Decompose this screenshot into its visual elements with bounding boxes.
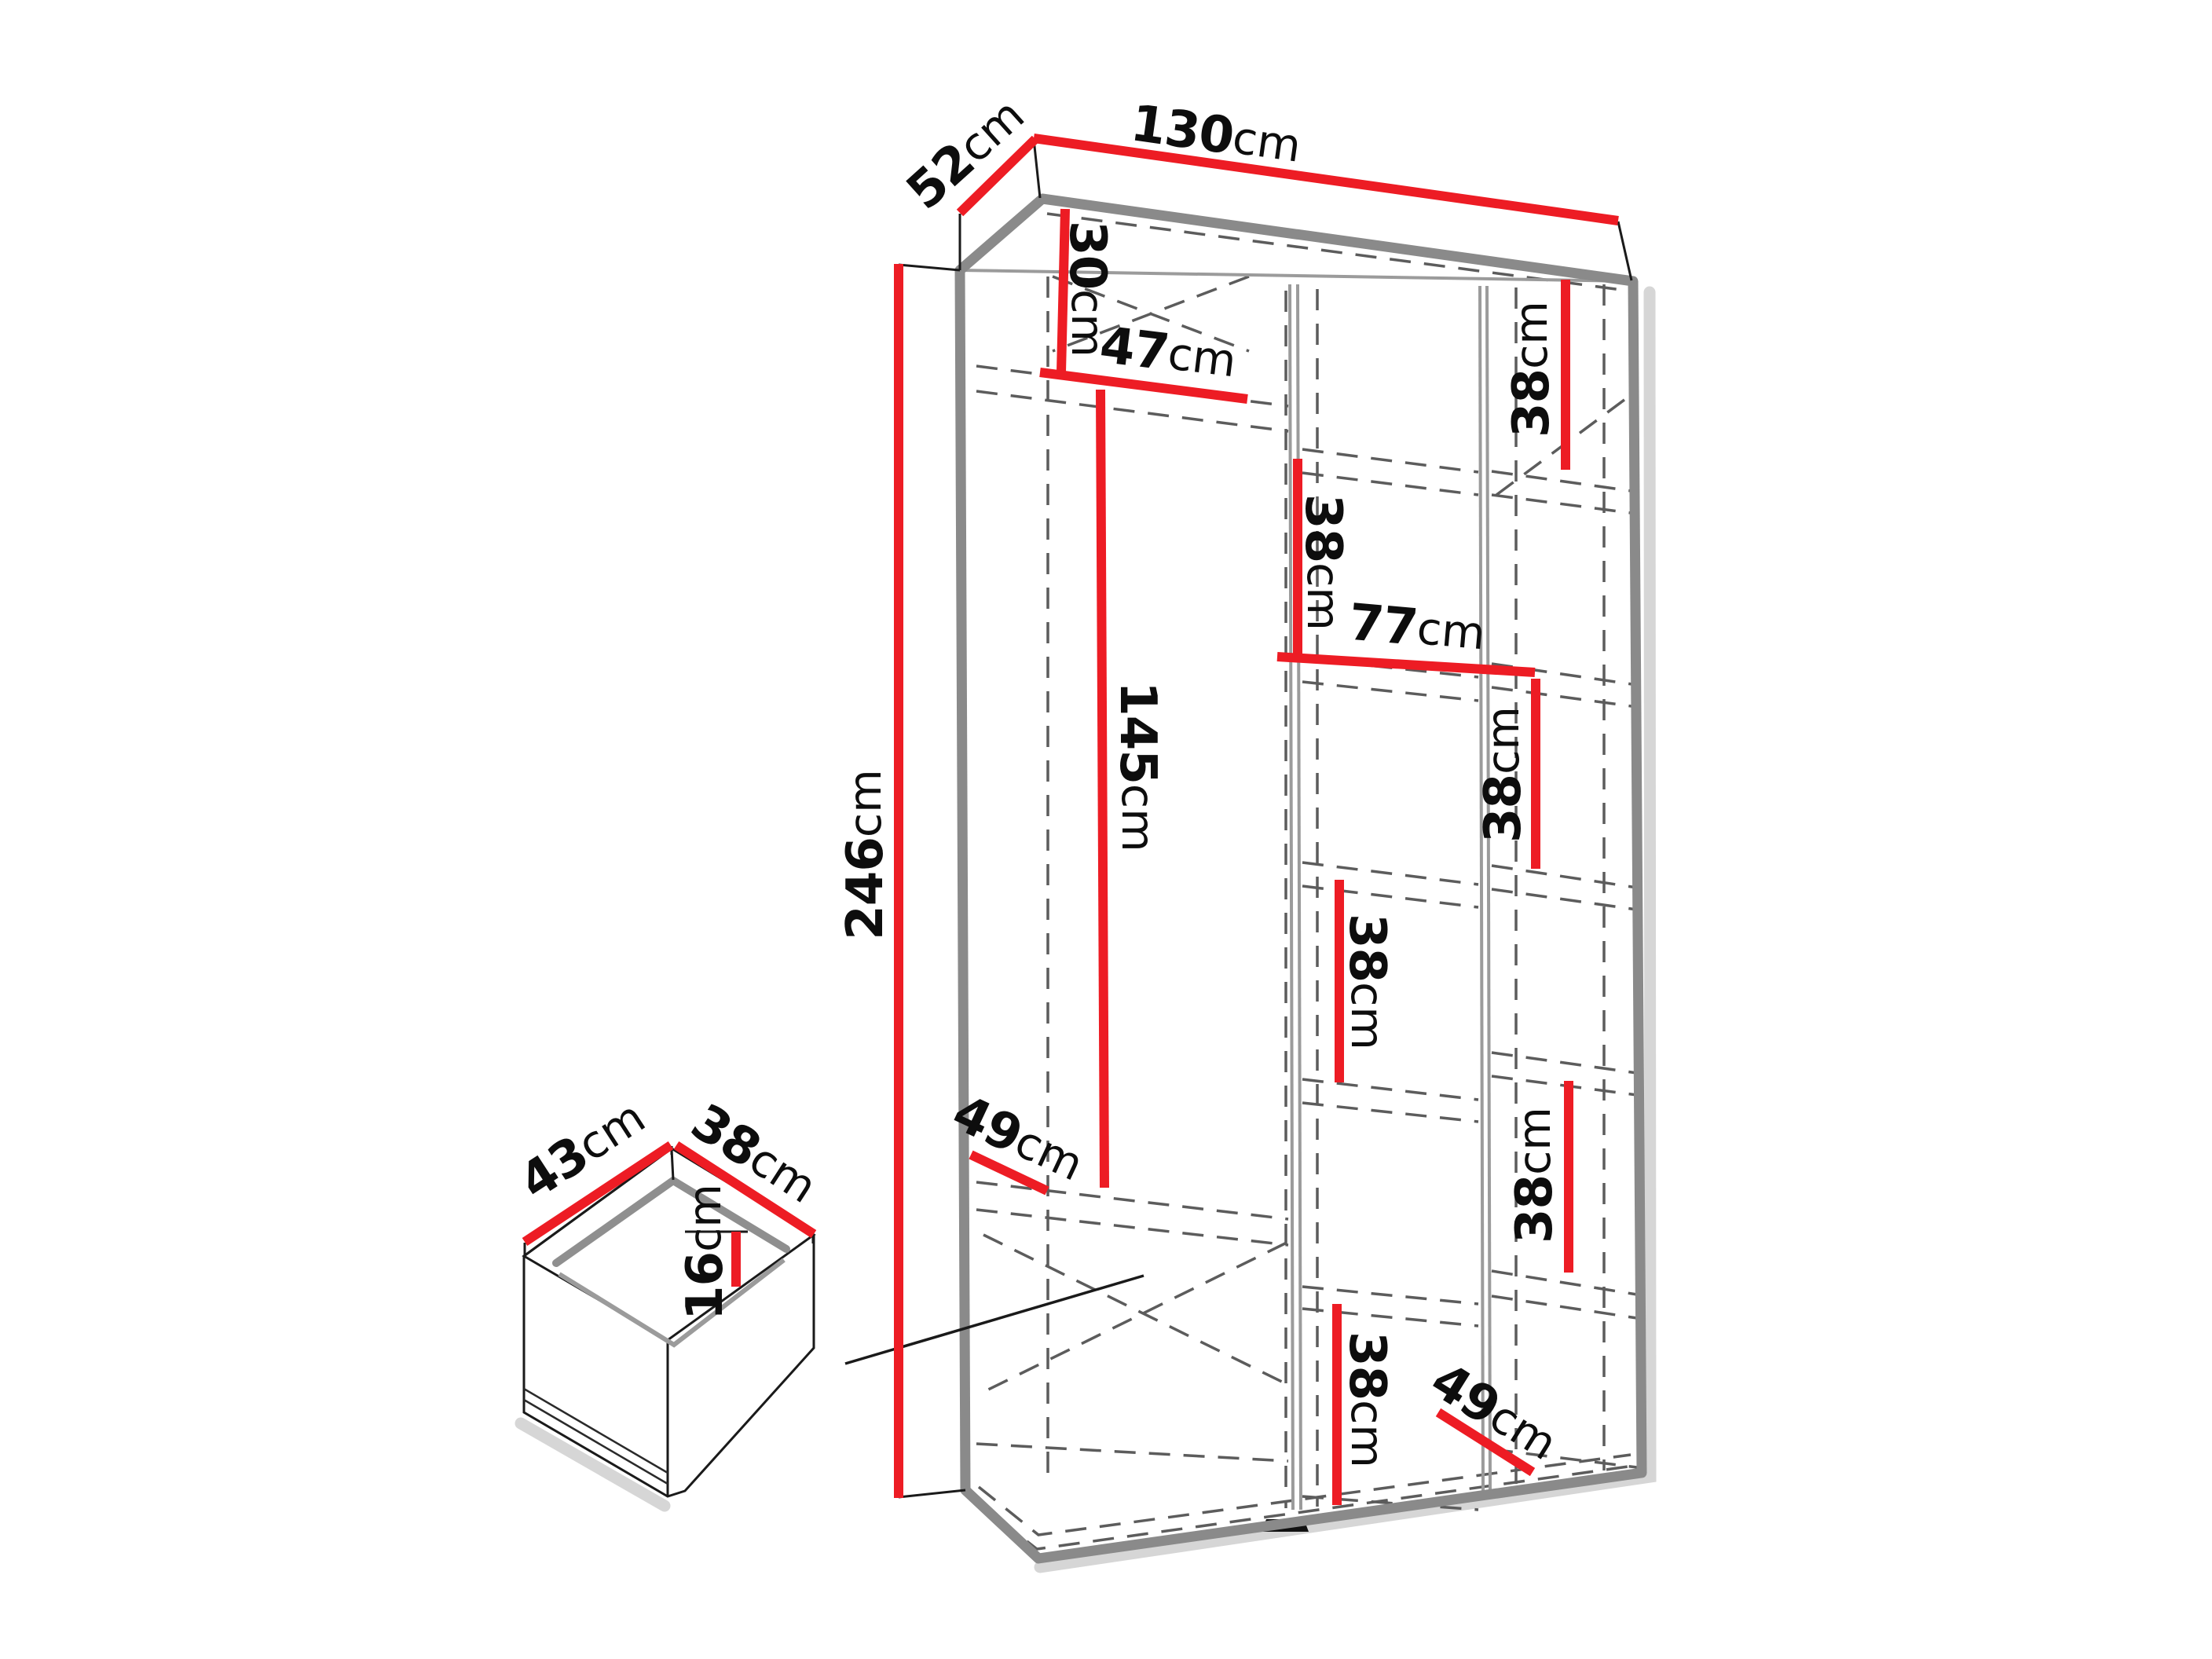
wardrobe-dimension-diagram: 130cm52cm246cm30cm47cm145cm38cm38cm77cm3… [0, 0, 2212, 1659]
dim-shelf-mid-1-label: 38cm [1294, 494, 1352, 631]
dim-hanging-height-label: 145cm [1108, 681, 1166, 851]
dim-hanging-height-line [1101, 390, 1104, 1188]
drawer-shadow [521, 1423, 665, 1506]
dim-shelf-mid-2-label: 38cm [1338, 914, 1396, 1050]
dim-shelf-right-2-label: 38cm [1474, 706, 1533, 843]
drawer-inner-bottom [559, 1260, 784, 1345]
dim-shelf-right-1-label: 38cm [1503, 301, 1561, 438]
dim-shelf-mid-3-label: 38cm [1338, 1331, 1396, 1468]
dim-drawer-depth-label: 43cm [510, 1089, 656, 1212]
diagram-stage: 130cm52cm246cm30cm47cm145cm38cm38cm77cm3… [0, 0, 2212, 1659]
dim-drawer-height-label: 16cm [676, 1184, 734, 1320]
dim-height-label: 246cm [837, 769, 895, 939]
drawer-detail [521, 1146, 814, 1506]
dim-width-label: 130cm [1127, 94, 1305, 176]
dim-shelf-right-3-label: 38cm [1506, 1107, 1564, 1243]
